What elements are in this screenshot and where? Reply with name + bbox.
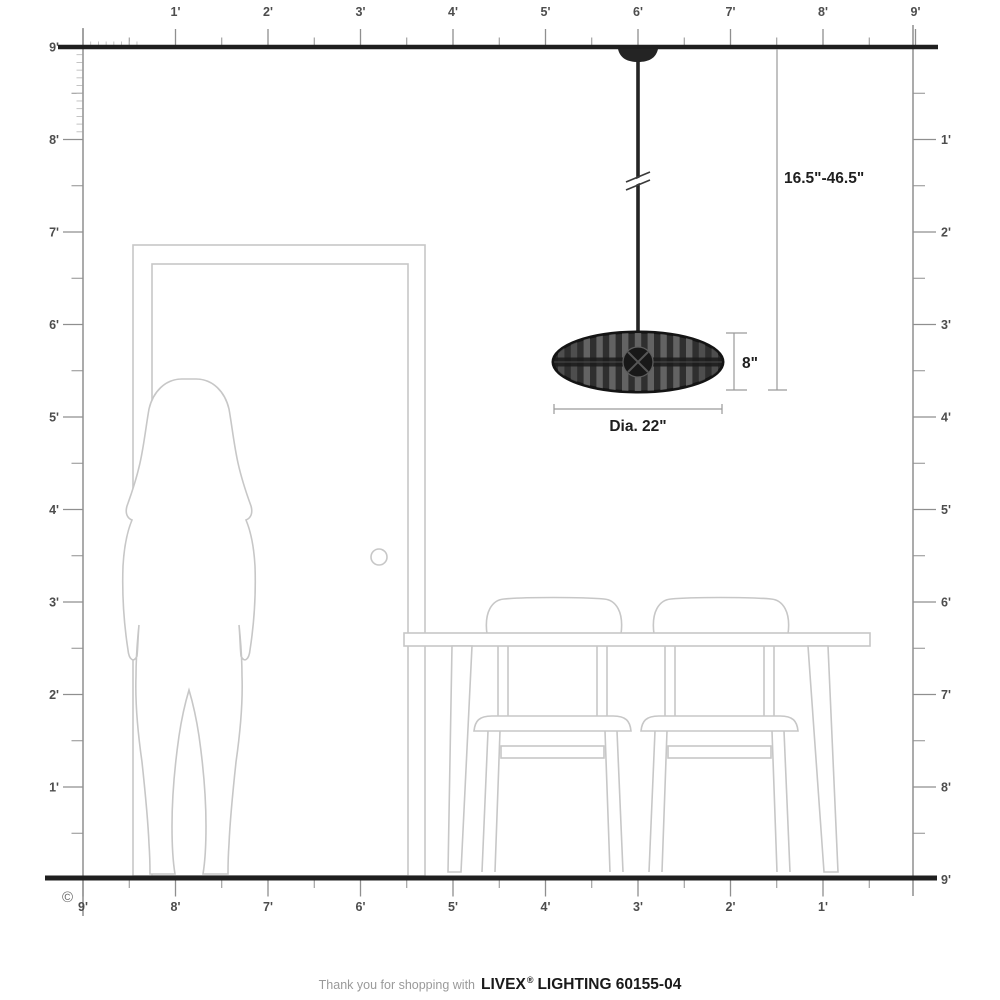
ruler-label: 7' [49, 226, 59, 240]
ruler-label: 3' [49, 596, 59, 610]
ruler-label: 3' [633, 900, 643, 914]
ruler-label: 8' [818, 5, 828, 19]
chair-seat [474, 716, 631, 731]
ruler-label: 4' [941, 411, 951, 425]
ruler-label: 4' [49, 503, 59, 517]
ruler-label: 3' [356, 5, 366, 19]
ruler-label: 2' [49, 688, 59, 702]
ruler-label: 2' [726, 900, 736, 914]
ruler-bottom: 9'8'7'6'5'4'3'2'1' [78, 879, 869, 914]
ruler-label: 1' [818, 900, 828, 914]
chair-back-posts [498, 646, 607, 716]
chair-stretcher [501, 746, 604, 758]
ruler-label: 2' [263, 5, 273, 19]
registered-mark: ® [527, 975, 534, 985]
ruler-label: 7' [263, 900, 273, 914]
door-knob [371, 549, 387, 565]
ruler-label: 6' [49, 318, 59, 332]
ruler-top: 1'2'3'4'5'6'7'8'9' [83, 5, 920, 46]
dimension-diagram-page: 1'2'3'4'5'6'7'8'9' 9'8'7'6'5'4'3'2'1' 1'… [0, 0, 1000, 1000]
diameter-label: Dia. 22" [609, 418, 666, 435]
ruler-label: 1' [941, 133, 951, 147]
ruler-label: 9' [49, 41, 59, 55]
ruler-label: 8' [171, 900, 181, 914]
ruler-label: 6' [633, 5, 643, 19]
chair-legs [482, 731, 623, 872]
ruler-label: 1' [49, 781, 59, 795]
ruler-label: 4' [541, 900, 551, 914]
ruler-label: 8' [941, 781, 951, 795]
table-top [404, 633, 870, 646]
ruler-label: 4' [448, 5, 458, 19]
ruler-left: 9'8'7'6'5'4'3'2'1' [49, 41, 82, 834]
ruler-label: 9' [78, 900, 88, 914]
ruler-label: 7' [941, 688, 951, 702]
brand-name: LIVEX [481, 976, 526, 993]
chair-backrest [486, 598, 621, 635]
table-leg-right [808, 646, 838, 872]
pendant-light [553, 49, 723, 393]
ruler-label: 1' [171, 5, 181, 19]
ruler-label: 9' [911, 5, 921, 19]
ruler-label: 5' [49, 411, 59, 425]
ruler-right: 1'2'3'4'5'6'7'8'9' [914, 93, 951, 887]
ruler-label: 7' [726, 5, 736, 19]
ruler-label: 5' [448, 900, 458, 914]
ruler-label: 6' [356, 900, 366, 914]
product-number: LIGHTING 60155-04 [537, 976, 681, 993]
copyright-symbol: © [62, 889, 73, 906]
dining-table [404, 633, 870, 872]
table-leg-left [448, 646, 472, 872]
fixture-height-label: 8" [742, 355, 758, 372]
scale-diagram: 1'2'3'4'5'6'7'8'9' 9'8'7'6'5'4'3'2'1' 1'… [0, 0, 1000, 1000]
person-silhouette [123, 379, 256, 874]
ruler-label: 3' [941, 318, 951, 332]
hanging-range-label: 16.5"-46.5" [784, 170, 864, 187]
ruler-label: 8' [49, 133, 59, 147]
ruler-label: 9' [941, 873, 951, 887]
pendant-rod [636, 60, 640, 333]
ruler-label: 5' [941, 503, 951, 517]
footer-prefix: Thank you for shopping with [319, 978, 475, 992]
ruler-label: 2' [941, 226, 951, 240]
footer-caption: Thank you for shopping withLIVEX®LIGHTIN… [319, 975, 682, 993]
ruler-label: 5' [541, 5, 551, 19]
ruler-label: 6' [941, 596, 951, 610]
